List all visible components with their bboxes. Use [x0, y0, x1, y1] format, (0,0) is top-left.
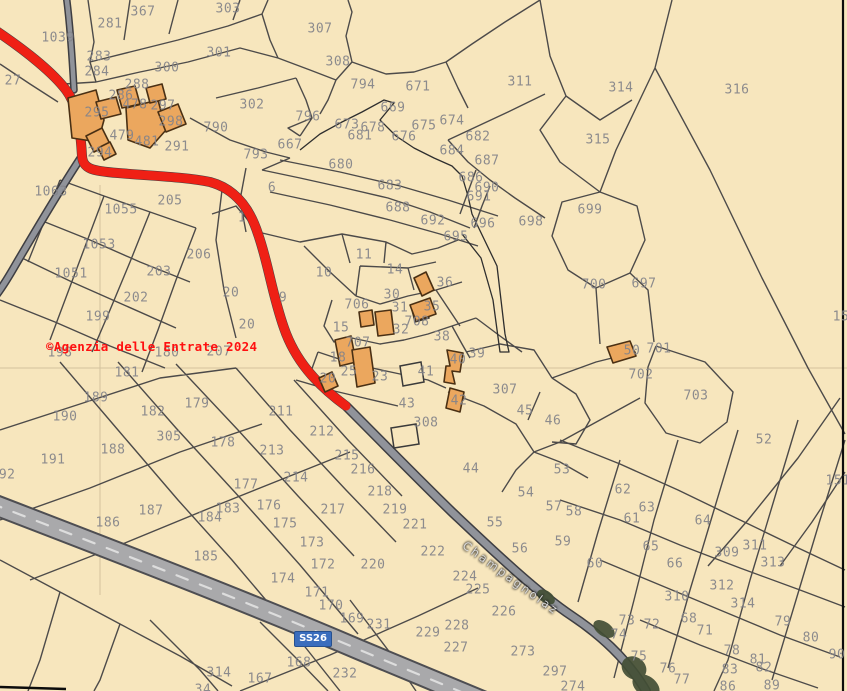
parcel-label: 680 — [329, 158, 354, 173]
parcel-label: 179 — [185, 397, 210, 412]
parcel-label: 307 — [308, 22, 333, 37]
parcel-label: 308 — [326, 55, 351, 70]
parcel-label: 18 — [330, 351, 347, 366]
parcel-label: 86 — [720, 680, 737, 691]
parcel-label: 27 — [5, 74, 22, 89]
parcel-label: 54 — [518, 486, 535, 501]
parcel-label: 1063 — [34, 185, 67, 200]
parcel-label: 205 — [158, 194, 183, 209]
parcel-label: 1051 — [54, 267, 87, 282]
parcel-label: 297 — [543, 665, 568, 680]
parcel-label: 41 — [418, 365, 435, 380]
road-badge-ss26: SS26 — [294, 631, 332, 647]
parcel-label: 50 — [624, 344, 641, 359]
parcel-label: 45 — [517, 404, 534, 419]
parcel-label: 188 — [101, 443, 126, 458]
parcel-label: 64 — [695, 514, 712, 529]
parcel-label: 310 — [665, 590, 690, 605]
parcel-label: 168 — [287, 656, 312, 671]
parcel-label: 225 — [466, 583, 491, 598]
parcel-label: 52 — [756, 433, 773, 448]
parcel-label: 20 — [320, 372, 337, 387]
parcel-label: 291 — [165, 140, 190, 155]
parcel-label: 170 — [319, 599, 344, 614]
parcel-label: 228 — [445, 619, 470, 634]
parcel-label: 184 — [198, 511, 223, 526]
parcel-label: 73 — [619, 614, 636, 629]
parcel-label: 674 — [440, 114, 465, 129]
parcel-label: 38 — [434, 330, 451, 345]
parcel-label: 702 — [629, 368, 654, 383]
parcel-label: 302 — [240, 98, 265, 113]
parcel-label: 59 — [555, 535, 572, 550]
parcel-label: 20 — [223, 286, 240, 301]
parcel-label: 687 — [475, 154, 500, 169]
parcel-label: 701 — [647, 342, 672, 357]
parcel-label: 186 — [96, 516, 121, 531]
parcel-label: 700 — [582, 278, 607, 293]
parcel-label: 481 — [135, 135, 160, 150]
parcel-label: 182 — [141, 405, 166, 420]
parcel-label: 691 — [467, 190, 492, 205]
parcel-label: 171 — [305, 586, 330, 601]
parcel-label: 25 — [341, 365, 358, 380]
parcel-label: 189 — [84, 391, 109, 406]
parcel-label: 61 — [624, 512, 641, 527]
parcel-label: 309 — [715, 546, 740, 561]
parcel-label: 690 — [475, 181, 500, 196]
parcel-label: 185 — [194, 550, 219, 565]
copyright-text: ©Agenzia delle Entrate 2024 — [46, 339, 257, 354]
parcel-label: 176 — [257, 499, 282, 514]
parcel-label: 684 — [440, 144, 465, 159]
parcel-label: 303 — [216, 2, 241, 17]
parcel-label: 65 — [643, 540, 660, 555]
parcel-label: 14 — [387, 263, 404, 278]
parcel-label: 669 — [381, 101, 406, 116]
parcel-label: 221 — [403, 518, 428, 533]
parcel-label: 295 — [85, 106, 110, 121]
parcel-label: 213 — [260, 444, 285, 459]
parcel-label: 169 — [340, 612, 365, 627]
parcel-label: 226 — [492, 605, 517, 620]
parcel-label: 219 — [383, 503, 408, 518]
parcel-label: 74 — [611, 628, 628, 643]
parcel-label: 63 — [639, 501, 656, 516]
parcel-label: 202 — [124, 291, 149, 306]
parcel-label: 43 — [399, 397, 416, 412]
parcel-label: 172 — [311, 558, 336, 573]
parcel-label: 301 — [207, 46, 232, 61]
parcel-label: 316 — [725, 83, 750, 98]
parcel-label: 681 — [348, 129, 373, 144]
parcel-label: 222 — [421, 545, 446, 560]
parcel-label: 273 — [511, 645, 536, 660]
parcel-label: 62 — [615, 483, 632, 498]
parcel-label: 1053 — [82, 238, 115, 253]
parcel-label: 297 — [151, 99, 176, 114]
parcel-label: 75 — [631, 650, 648, 665]
parcel-label: 81 — [750, 653, 767, 668]
parcel-label: 56 — [512, 542, 529, 557]
parcel-label: 58 — [566, 505, 583, 520]
parcel-label: 682 — [466, 130, 491, 145]
parcel-label: 314 — [731, 597, 756, 612]
parcel-label: 192 — [0, 468, 15, 483]
parcel-label: 31 — [392, 301, 409, 316]
parcel-label: 212 — [310, 425, 335, 440]
parcel-label: 77 — [674, 673, 691, 688]
parcel-label: 71 — [697, 624, 714, 639]
parcel-label: 314 — [207, 666, 232, 681]
parcel-label: 214 — [284, 471, 309, 486]
parcel-label: 231 — [367, 618, 392, 633]
parcel-label: 283 — [87, 50, 112, 65]
parcel-label: 78 — [724, 644, 741, 659]
parcel-label: 89 — [764, 679, 781, 691]
parcel-label: 174 — [271, 572, 296, 587]
parcel-label: 11 — [356, 248, 373, 263]
parcel-label: 23 — [372, 370, 389, 385]
parcel-label: 678 — [361, 121, 386, 136]
parcel-label: 82 — [756, 661, 773, 676]
parcel-label: 15 — [333, 321, 350, 336]
parcel-label: 42 — [451, 394, 468, 409]
parcel-label: 30 — [384, 288, 401, 303]
parcel-label: 673 — [335, 118, 360, 133]
parcel-label: 281 — [98, 17, 123, 32]
parcel-label: 218 — [368, 485, 393, 500]
parcel-label: 313 — [761, 556, 786, 571]
parcel-label: 68 — [681, 612, 698, 627]
parcel-label: 151 — [826, 474, 847, 489]
parcel-label: 686 — [459, 171, 484, 186]
parcel-label: 698 — [519, 215, 544, 230]
parcel-label: 20 — [239, 318, 256, 333]
parcel-label: 167 — [248, 672, 273, 687]
parcel-label: 314 — [609, 81, 634, 96]
parcel-label: 790 — [204, 121, 229, 136]
parcel-label: 60 — [587, 557, 604, 572]
parcel-label: 55 — [487, 516, 504, 531]
parcel-label: 72 — [644, 618, 661, 633]
parcel-label: 187 — [139, 504, 164, 519]
parcel-label: 793 — [244, 148, 269, 163]
parcel-label: 692 — [421, 214, 446, 229]
parcel-label: 177 — [234, 478, 259, 493]
parcel-label: 190 — [53, 410, 78, 425]
parcel-label: 215 — [335, 449, 360, 464]
parcel-label: 46 — [545, 414, 562, 429]
parcel-label: 1 — [238, 211, 246, 226]
parcel-label: 308 — [414, 416, 439, 431]
parcel-label: 83 — [722, 663, 739, 678]
parcel-label: 80 — [803, 631, 820, 646]
parcel-label: 183 — [216, 502, 241, 517]
parcel-label: 199 — [86, 310, 111, 325]
parcel-label: 294 — [88, 146, 113, 161]
parcel-label: 312 — [710, 579, 735, 594]
parcel-label: 181 — [115, 366, 140, 381]
parcel-label: 53 — [554, 463, 571, 478]
parcel-label: 216 — [351, 463, 376, 478]
parcel-label: 35 — [424, 300, 441, 315]
parcel-label: 288 — [125, 78, 150, 93]
parcel-label: 707 — [346, 336, 371, 351]
parcel-label: 697 — [632, 277, 657, 292]
parcel-label: 274 — [561, 680, 586, 691]
parcel-label: 232 — [333, 667, 358, 682]
parcel-label: 224 — [453, 570, 478, 585]
parcel-label: 367 — [131, 5, 156, 20]
parcel-label: 1055 — [104, 203, 137, 218]
parcel-label: 79 — [775, 615, 792, 630]
parcel-label: 315 — [586, 133, 611, 148]
parcel-label: 206 — [187, 248, 212, 263]
parcel-label: 284 — [85, 65, 110, 80]
parcel-label: 305 — [157, 430, 182, 445]
parcel-label: 796 — [296, 110, 321, 125]
parcel-label: 220 — [361, 558, 386, 573]
parcel-label: 695 — [444, 230, 469, 245]
parcel-label: 173 — [300, 536, 325, 551]
parcel-label: 307 — [493, 383, 518, 398]
parcel-label: 311 — [743, 539, 768, 554]
parcel-label: 39 — [469, 347, 486, 362]
parcel-label: 675 — [412, 119, 437, 134]
parcel-label: 175 — [273, 517, 298, 532]
parcel-label: 300 — [155, 61, 180, 76]
parcel-label: 683 — [378, 179, 403, 194]
parcel-label: 211 — [269, 405, 294, 420]
parcel-label: 6 — [268, 181, 276, 196]
parcel-label: 66 — [667, 557, 684, 572]
parcel-label: 298 — [159, 115, 184, 130]
parcel-label: 32 — [393, 323, 410, 338]
parcel-label: 217 — [321, 503, 346, 518]
parcel-label: 227 — [444, 641, 469, 656]
parcel-label: 699 — [578, 203, 603, 218]
parcel-label: 34 — [195, 683, 212, 691]
parcel-label: 696 — [471, 217, 496, 232]
parcel-label: 90 — [829, 648, 846, 663]
parcel-label: 178 — [211, 436, 236, 451]
parcel-label: 794 — [351, 78, 376, 93]
parcel-label: 478 — [123, 98, 148, 113]
parcel-label: 703 — [684, 389, 709, 404]
parcel-label: 36 — [437, 276, 454, 291]
parcel-label: 203 — [147, 265, 172, 280]
parcel-label: 76 — [660, 662, 677, 677]
parcel-label: 191 — [41, 453, 66, 468]
parcel-label: 688 — [386, 201, 411, 216]
parcel-label: 10 — [316, 266, 333, 281]
parcel-label: 286 — [109, 89, 134, 104]
cadastral-map-canvas[interactable]: 1039281367303307301300283284272882862974… — [0, 0, 847, 691]
parcel-label: 57 — [546, 500, 563, 515]
parcel-label: 9 — [279, 291, 287, 306]
parcel-label: 708 — [405, 315, 430, 330]
parcel-label: 667 — [278, 138, 303, 153]
parcel-label: 40 — [450, 353, 467, 368]
parcel-label: 479 — [110, 129, 135, 144]
parcel-label: 44 — [463, 462, 480, 477]
parcel-label: 671 — [406, 80, 431, 95]
parcel-label: 15 — [833, 310, 847, 325]
parcel-label: 1039 — [41, 31, 74, 46]
parcel-label: 676 — [392, 130, 417, 145]
parcel-label: 706 — [345, 298, 370, 313]
parcel-label: 311 — [508, 75, 533, 90]
parcel-label: 229 — [416, 626, 441, 641]
